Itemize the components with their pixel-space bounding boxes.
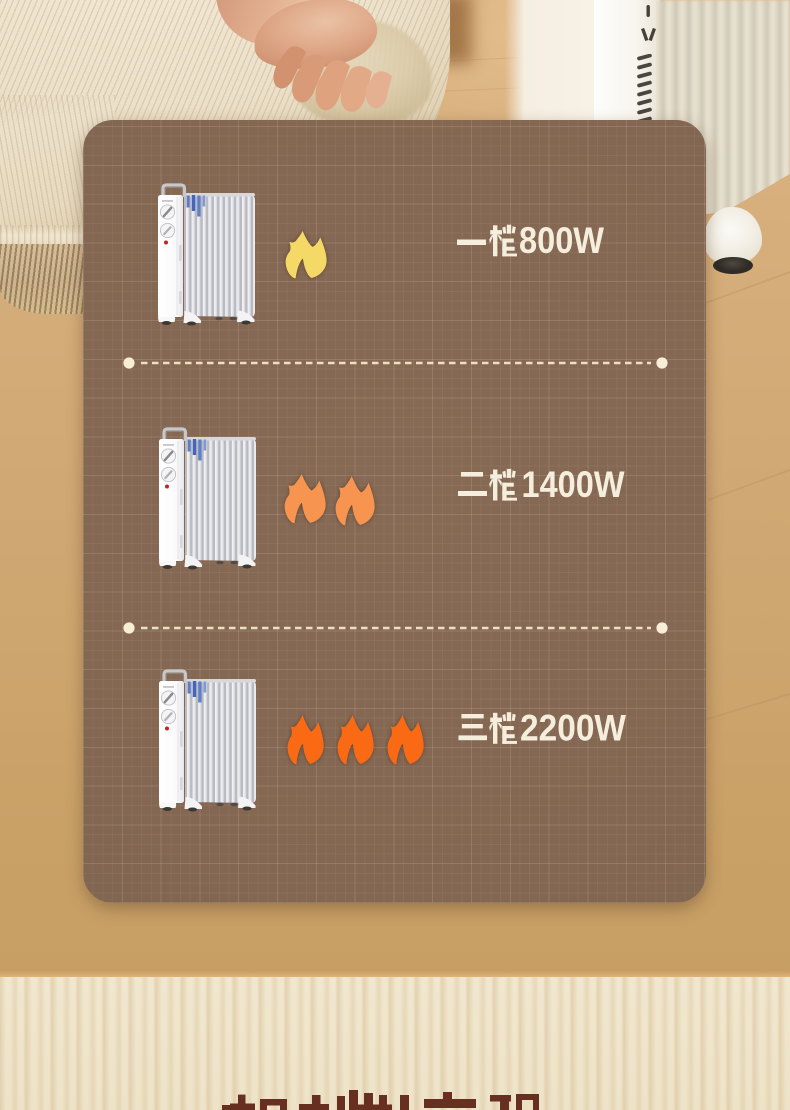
- svg-text:1400W: 1400W: [522, 464, 625, 505]
- svg-text:2200W: 2200W: [520, 707, 626, 748]
- svg-text:800W: 800W: [519, 220, 604, 261]
